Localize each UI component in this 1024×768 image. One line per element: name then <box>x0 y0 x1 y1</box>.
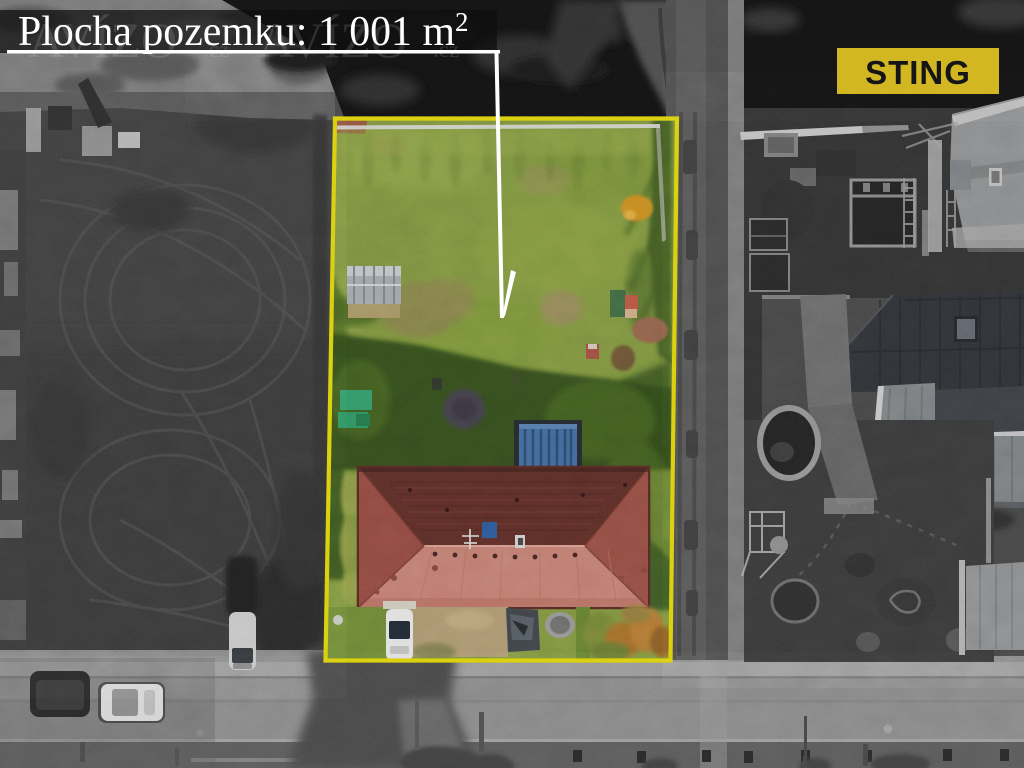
svg-text:Plocha pozemku: 1 001 m2: Plocha pozemku: 1 001 m2 <box>18 7 469 55</box>
svg-text:STING: STING <box>865 54 971 91</box>
